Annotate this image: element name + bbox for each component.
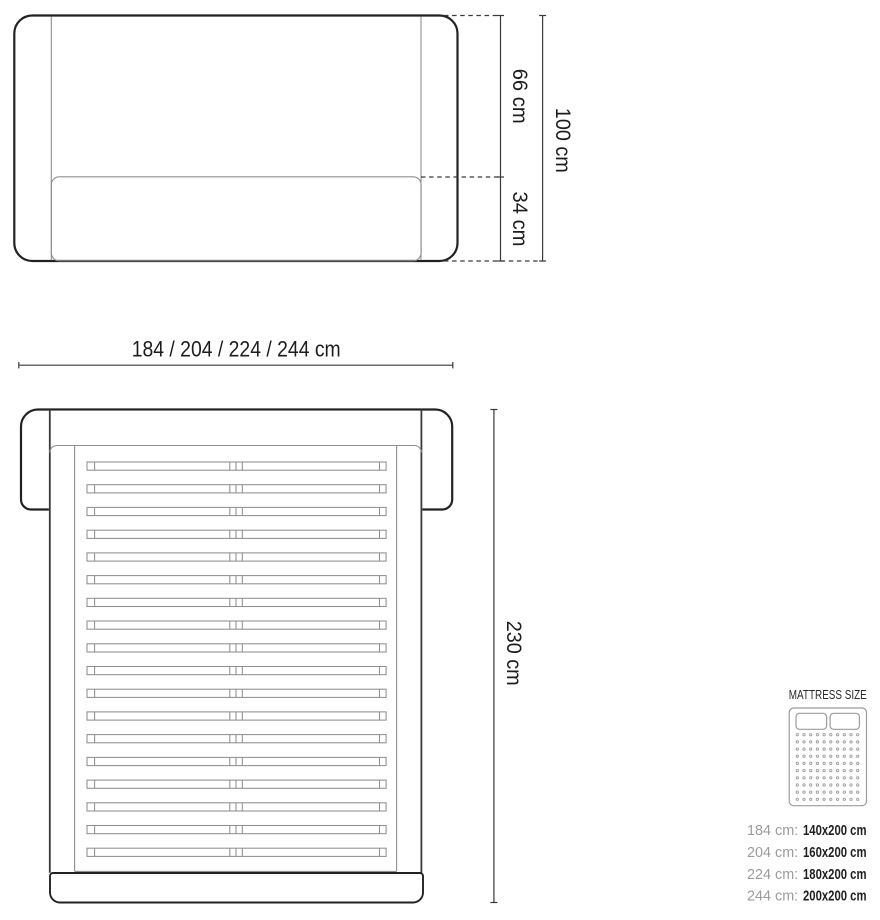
svg-text:230 cm: 230 cm bbox=[502, 621, 525, 686]
svg-text:160x200 cm: 160x200 cm bbox=[803, 845, 867, 861]
svg-text:244 cm:: 244 cm: bbox=[747, 889, 798, 905]
svg-text:184 cm:: 184 cm: bbox=[747, 823, 798, 839]
svg-text:140x200 cm: 140x200 cm bbox=[803, 823, 867, 839]
svg-text:34 cm: 34 cm bbox=[508, 192, 531, 247]
svg-text:MATTRESS SIZE: MATTRESS SIZE bbox=[789, 688, 867, 702]
svg-text:200x200 cm: 200x200 cm bbox=[803, 889, 867, 905]
svg-text:204 cm:: 204 cm: bbox=[747, 845, 798, 861]
svg-text:180x200 cm: 180x200 cm bbox=[803, 867, 867, 883]
svg-text:224 cm:: 224 cm: bbox=[747, 867, 798, 883]
svg-text:184 / 204 / 224 / 244 cm: 184 / 204 / 224 / 244 cm bbox=[132, 336, 341, 361]
svg-text:100 cm: 100 cm bbox=[551, 108, 574, 173]
svg-text:66 cm: 66 cm bbox=[508, 69, 531, 124]
